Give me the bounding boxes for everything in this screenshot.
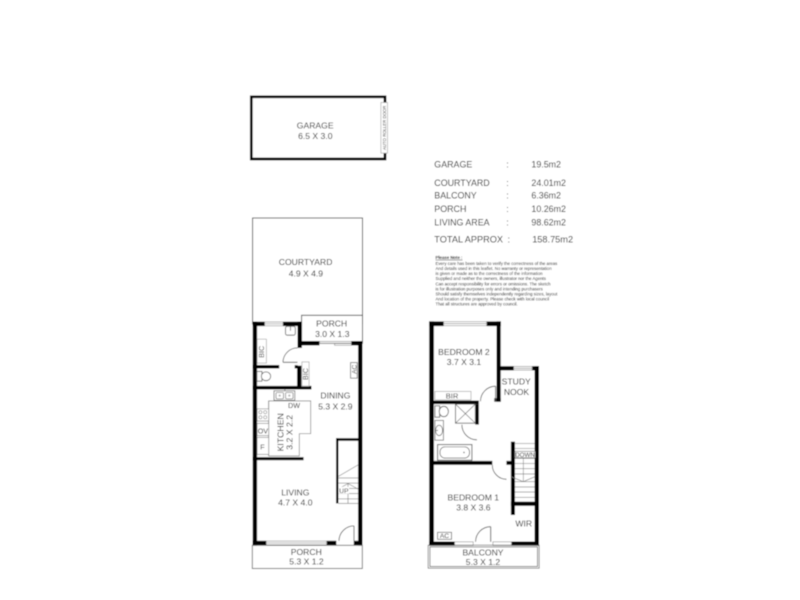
svg-text:COURTYARD: COURTYARD — [434, 178, 489, 188]
svg-text::: : — [508, 234, 511, 244]
svg-text::: : — [506, 160, 508, 170]
svg-text:4.7 X 4.0: 4.7 X 4.0 — [278, 498, 313, 508]
svg-text::: : — [506, 217, 508, 227]
svg-text:TOTAL APPROX: TOTAL APPROX — [434, 234, 503, 244]
svg-text:BIR: BIR — [446, 392, 459, 401]
svg-text:GARAGE: GARAGE — [434, 160, 472, 170]
svg-text:DOWN: DOWN — [515, 452, 535, 459]
svg-text:158.75m2: 158.75m2 — [532, 234, 573, 244]
svg-text:AC: AC — [440, 533, 449, 540]
svg-text:BEDROOM 2: BEDROOM 2 — [438, 347, 490, 357]
svg-text:OV: OV — [258, 426, 269, 435]
svg-text:24.01m2: 24.01m2 — [531, 178, 566, 188]
svg-text:NOOK: NOOK — [504, 387, 530, 397]
svg-text:3.8 X 3.6: 3.8 X 3.6 — [456, 502, 491, 512]
svg-text:PORCH: PORCH — [434, 204, 466, 214]
svg-text::: : — [506, 178, 508, 188]
svg-text:Please Note :: Please Note : — [436, 255, 464, 260]
svg-text:DW: DW — [288, 401, 300, 410]
svg-text:DINING: DINING — [320, 390, 350, 400]
svg-text:5.3 X 1.2: 5.3 X 1.2 — [289, 557, 324, 567]
svg-text:That all structures are approv: That all structures are approved by coun… — [436, 302, 518, 307]
svg-text:5.3 X 2.9: 5.3 X 2.9 — [318, 401, 353, 411]
svg-text:4.9 X 4.9: 4.9 X 4.9 — [289, 269, 324, 279]
svg-text::: : — [506, 204, 508, 214]
svg-text:LIVING AREA: LIVING AREA — [434, 217, 489, 227]
svg-text:LIVING: LIVING — [281, 487, 309, 497]
svg-text:F: F — [260, 443, 265, 452]
svg-text:10.26m2: 10.26m2 — [531, 204, 566, 214]
svg-text:PORCH: PORCH — [291, 547, 322, 557]
svg-text:BALCONY: BALCONY — [434, 191, 476, 201]
svg-text:BIC: BIC — [301, 368, 310, 380]
svg-text::: : — [506, 191, 508, 201]
svg-text:3.7 X 3.1: 3.7 X 3.1 — [447, 357, 482, 367]
svg-text:19.5m2: 19.5m2 — [531, 160, 561, 170]
svg-text:5.3 X 1.2: 5.3 X 1.2 — [466, 557, 501, 567]
svg-text:3.0 X 1.3: 3.0 X 1.3 — [315, 329, 350, 339]
svg-text:PORCH: PORCH — [316, 319, 347, 329]
svg-text:COURTYARD: COURTYARD — [279, 257, 333, 267]
svg-text:GARAGE: GARAGE — [297, 120, 334, 130]
svg-text:6.5 X 3.0: 6.5 X 3.0 — [298, 131, 333, 141]
svg-text:AUTO ROLLER DOOR: AUTO ROLLER DOOR — [382, 106, 387, 150]
svg-text:AC: AC — [351, 364, 358, 373]
svg-text:UP: UP — [339, 488, 349, 495]
svg-text:BEDROOM 1: BEDROOM 1 — [448, 492, 500, 502]
svg-text:98.62m2: 98.62m2 — [531, 217, 566, 227]
svg-text:BIC: BIC — [257, 346, 266, 358]
svg-text:WIR: WIR — [515, 518, 532, 528]
svg-text:3.2 X 2.2: 3.2 X 2.2 — [285, 415, 295, 450]
svg-text:STUDY: STUDY — [502, 377, 531, 387]
svg-text:6.36m2: 6.36m2 — [531, 191, 561, 201]
